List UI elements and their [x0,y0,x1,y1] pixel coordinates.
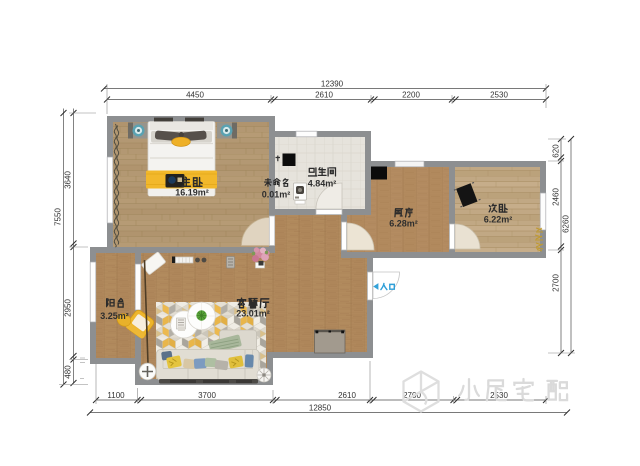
svg-text:6260: 6260 [562,215,571,233]
svg-text:2610: 2610 [338,391,356,400]
svg-text:12390: 12390 [321,80,344,89]
svg-text:4450: 4450 [186,91,204,100]
svg-text:3.25m²: 3.25m² [100,311,129,321]
svg-text:3640: 3640 [64,171,73,189]
svg-text:2950: 2950 [64,299,73,317]
svg-text:6.22m²: 6.22m² [484,214,513,224]
svg-text:2530: 2530 [490,91,508,100]
svg-text:2200: 2200 [402,91,420,100]
svg-text:620: 620 [552,144,561,158]
svg-text:1100: 1100 [107,391,125,400]
svg-text:480: 480 [64,365,73,379]
svg-text:16.19m²: 16.19m² [175,188,209,198]
svg-text:2610: 2610 [315,91,333,100]
svg-text:0.01m²: 0.01m² [262,189,291,199]
svg-text:7550: 7550 [54,208,63,226]
svg-text:12850: 12850 [309,404,332,413]
svg-text:2700: 2700 [552,274,561,292]
svg-text:2460: 2460 [552,188,561,206]
svg-text:23.01m²: 23.01m² [236,309,270,319]
svg-text:3700: 3700 [198,391,216,400]
svg-text:4.84m²: 4.84m² [308,178,337,188]
svg-text:2530: 2530 [490,391,508,400]
svg-text:6.28m²: 6.28m² [389,218,418,228]
